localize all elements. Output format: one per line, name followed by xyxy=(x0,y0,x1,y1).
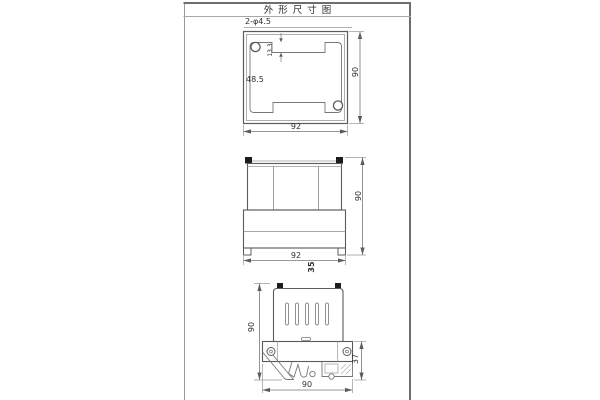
screw-left xyxy=(267,348,275,356)
front-view-depth-label: 35 xyxy=(308,261,316,272)
page-frame xyxy=(184,2,412,400)
notch-depth-dimension xyxy=(279,33,283,62)
title-bar: 外形尺寸图 xyxy=(184,2,411,16)
front-view xyxy=(244,157,367,265)
dimension-drawing-page: 外形尺寸图 2-φ4.5 13.3 48.5 90 92 90 92 35 90… xyxy=(0,0,600,400)
side-view-width-label: 90 xyxy=(302,381,312,389)
side-view-height-label: 90 xyxy=(248,322,256,332)
side-view-rail-depth-label: 37 xyxy=(352,354,360,364)
vent-slot xyxy=(296,303,299,325)
latch-pin xyxy=(329,374,334,379)
front-view-height-dimension xyxy=(345,158,366,256)
vent-slot xyxy=(286,303,289,325)
rail-wing-left xyxy=(263,352,294,380)
side-view xyxy=(254,283,366,393)
mounting-hole-top-left xyxy=(251,42,260,51)
side-view-height-dimension xyxy=(254,284,282,381)
top-view-width-label: 92 xyxy=(291,123,301,131)
vent-slot xyxy=(316,303,319,325)
terminal-block-right xyxy=(336,157,343,164)
front-view-width-label: 92 xyxy=(291,252,301,260)
front-upper-body xyxy=(248,164,342,211)
front-foot-right xyxy=(338,248,346,255)
screw-left-center xyxy=(270,350,273,353)
top-view-notch-depth-label: 13.3 xyxy=(268,43,274,56)
spring-clip-pin xyxy=(310,371,315,376)
terminal-block-left xyxy=(245,157,252,164)
vent-slot xyxy=(306,303,309,325)
top-view-height-label: 90 xyxy=(352,67,360,77)
label-slot xyxy=(302,338,311,341)
front-base-flange xyxy=(244,210,346,248)
front-view-height-label: 90 xyxy=(355,191,363,201)
mounting-hole-bottom-right xyxy=(333,101,342,110)
top-view-height-dimension xyxy=(349,32,364,124)
drawing-canvas xyxy=(0,0,600,400)
screw-right xyxy=(343,348,351,356)
screw-right-center xyxy=(346,350,349,353)
rail-latch-window xyxy=(325,364,338,373)
hole-callout-label: 2-φ4.5 xyxy=(245,18,271,26)
rail-spring-clip xyxy=(289,362,309,377)
front-foot-left xyxy=(244,248,252,255)
top-view-inner-dim-label: 48.5 xyxy=(246,76,264,84)
vent-slot xyxy=(326,303,329,325)
drawing-title: 外形尺寸图 xyxy=(259,2,337,16)
